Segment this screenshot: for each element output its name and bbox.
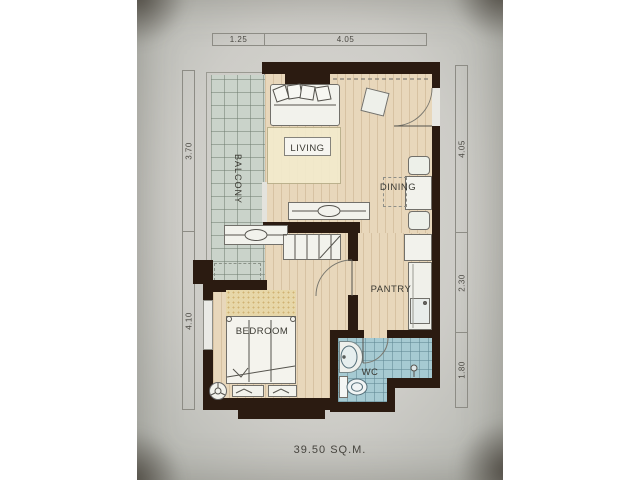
dining-label: DINING	[362, 182, 434, 193]
pantry-faucet-dot	[424, 302, 427, 305]
wardrobe-lines	[295, 235, 340, 259]
shower-head-icon	[411, 365, 417, 377]
wc-basin-icon	[341, 346, 357, 368]
bed-posts	[227, 317, 296, 322]
entry-door-arc	[394, 88, 432, 126]
bedroom-label: BEDROOM	[225, 326, 299, 337]
floorplan-photo: 1.25 4.05 3.70 4.10 4.05 2.30 1.80	[137, 0, 503, 480]
wc-door-arc	[363, 338, 388, 363]
bedroom-door-arc	[316, 260, 352, 296]
balcony-label: BALCONY	[233, 119, 243, 239]
pantry-label: PANTRY	[361, 284, 421, 295]
bedroom-stool	[210, 383, 227, 400]
plan-linework	[137, 0, 503, 480]
toilet-bowl-icon	[347, 379, 367, 395]
bed-blanket-fold	[227, 366, 295, 377]
area-caption: 39.50 SQ.M.	[250, 444, 410, 456]
living-label: LIVING	[290, 143, 324, 154]
tv-living-icon	[292, 206, 366, 217]
wc-label: WC	[353, 367, 387, 378]
bench-marks	[236, 389, 289, 393]
living-label-box: LIVING	[284, 137, 331, 156]
sofa-pillows	[273, 84, 331, 102]
